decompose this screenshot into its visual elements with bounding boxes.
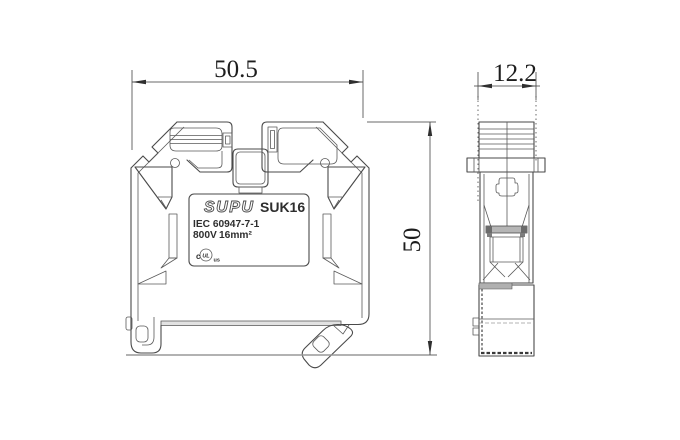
wire-cavity-box	[490, 237, 523, 262]
cert-ul: UL	[202, 254, 210, 260]
dimension-height: 50	[367, 122, 436, 355]
left-release-wedge	[138, 271, 166, 284]
left-wire-funnel	[135, 167, 172, 209]
side-main-body	[480, 172, 533, 283]
center-partition	[233, 149, 268, 187]
foot-tab-upper	[473, 318, 479, 326]
side-view	[467, 96, 545, 356]
right-clamp-window-inner	[271, 131, 275, 149]
terminal-block-drawing-page: 50.5 12.2 50 SUPU SUK16 IEC 60947-7-1 80…	[0, 0, 680, 440]
right-clamp-block	[262, 122, 323, 172]
left-din-foot	[126, 309, 161, 353]
product-label-plate: SUPU SUK16 IEC 60947-7-1 800V 16mm² c UL…	[189, 194, 309, 266]
front-view	[126, 122, 437, 368]
hidden-edge-bar	[479, 283, 512, 289]
wire-size-rating: 16mm²	[219, 230, 252, 241]
center-partition-base	[239, 187, 262, 193]
left-screw-hole	[171, 159, 180, 168]
left-lower-chamber	[189, 151, 222, 168]
arrowhead-right	[349, 80, 363, 84]
clamp-bar	[486, 226, 527, 233]
right-screw-cavity	[278, 128, 337, 164]
clamp-hook-left	[487, 233, 492, 237]
left-clamp-window	[223, 133, 232, 147]
side-top-cap	[479, 122, 534, 158]
dimension-depth: 12.2	[474, 60, 540, 100]
cul-us-certification-mark: c UL us	[196, 249, 220, 264]
arrowhead-left	[478, 84, 492, 88]
side-flange-band	[467, 158, 545, 172]
lower-funnel-cross-lines	[483, 262, 530, 280]
height-dimension-value: 50	[399, 228, 426, 253]
cert-us: us	[214, 258, 220, 264]
clamp-hook-right	[520, 233, 525, 237]
standard-text: IEC 60947-7-1	[193, 219, 260, 230]
left-clamp-window-inner	[226, 136, 231, 144]
arrowhead-left	[132, 80, 146, 84]
model-number: SUK16	[260, 199, 305, 215]
technical-drawing: 50.5 12.2 50 SUPU SUK16 IEC 60947-7-1 80…	[0, 0, 680, 440]
width-dimension-value: 50.5	[214, 56, 258, 83]
bottom-right-corner	[341, 314, 369, 325]
clamp-bar-end-right	[521, 226, 527, 233]
arrowhead-bottom	[428, 341, 432, 355]
right-screw-hole	[321, 159, 330, 168]
depth-dimension-value: 12.2	[493, 60, 537, 87]
side-funnel-lines	[484, 205, 529, 227]
right-side-slot	[323, 214, 339, 268]
brand-logo: SUPU	[204, 199, 254, 216]
din-rail-seat	[161, 321, 341, 326]
left-screw-slot-lines	[170, 136, 222, 144]
right-din-foot	[302, 325, 352, 368]
cert-c: c	[196, 252, 201, 261]
arrowhead-top	[428, 122, 432, 136]
right-wire-funnel	[328, 167, 365, 209]
clamp-bar-end-left	[486, 226, 492, 233]
foot-tab-lower	[473, 328, 479, 335]
left-side-slot	[161, 214, 177, 268]
voltage-rating: 800V	[193, 230, 217, 241]
side-bottom-block	[473, 283, 534, 356]
right-release-wedge	[334, 271, 362, 284]
center-partition-inner	[236, 152, 265, 184]
